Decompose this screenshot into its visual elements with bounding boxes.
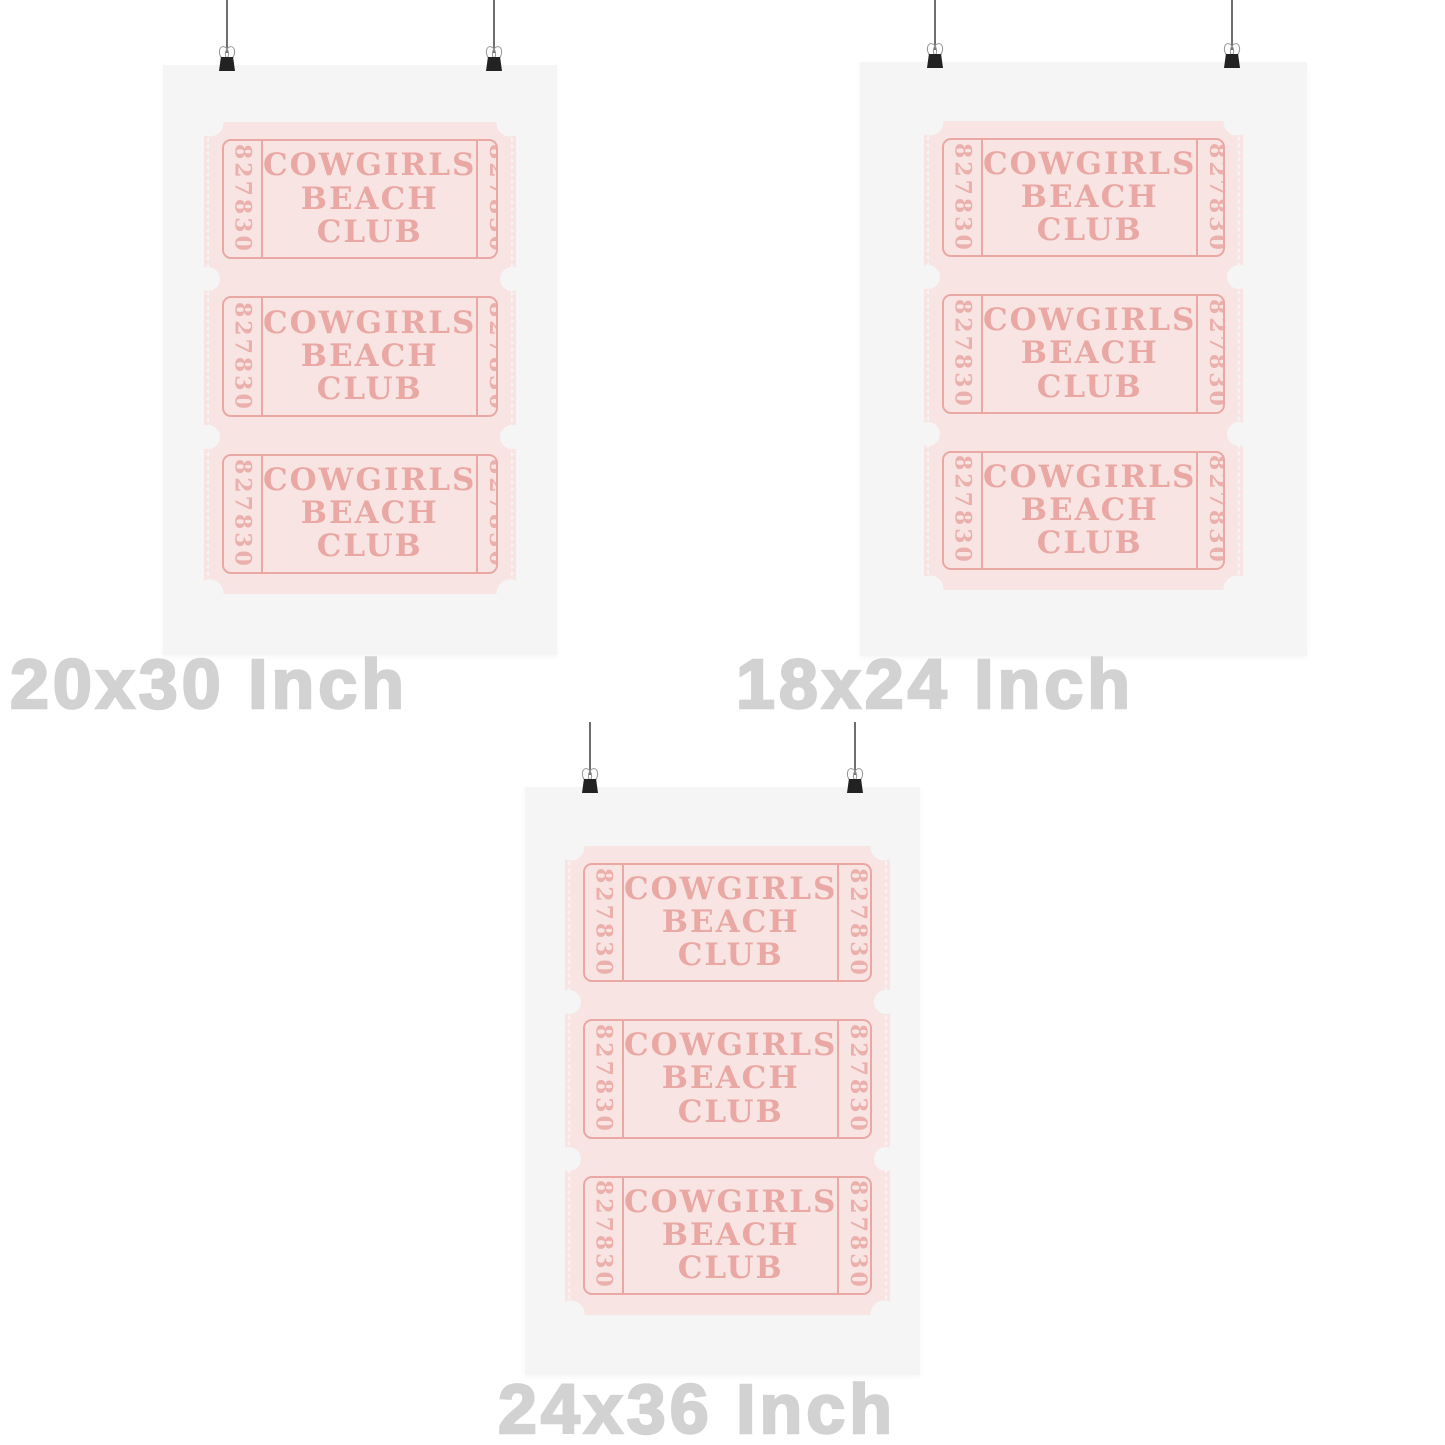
poster-24x36: 827830 COWGIRLS BEACH CLUB 827830 827830 [525, 787, 920, 1375]
serial-column-left: 827830 [224, 141, 263, 257]
title-line: BEACH [1021, 337, 1159, 370]
corner-notch [558, 834, 585, 861]
binder-clip [485, 0, 503, 78]
hanging-wire-icon [589, 722, 591, 775]
binder-clip-icon [847, 779, 863, 793]
junction-notch [196, 425, 220, 449]
serial-column-right: 827830 [837, 865, 872, 980]
serial-number: 827830 [950, 455, 976, 565]
serial-column-right: 827830 [837, 1178, 872, 1293]
serial-column-left: 827830 [224, 456, 263, 572]
corner-notch [197, 580, 224, 607]
junction-notch [916, 422, 940, 446]
serial-number: 827830 [591, 1180, 617, 1290]
junction-notch [874, 990, 898, 1014]
ticket: 827830 COWGIRLS BEACH CLUB 827830 [570, 1159, 885, 1315]
serial-column-right: 827830 [476, 141, 498, 257]
serial-column-right: 827830 [476, 456, 498, 572]
ticket: 827830 COWGIRLS BEACH CLUB 827830 [209, 437, 511, 594]
poster-18x24: 827830 COWGIRLS BEACH CLUB 827830 827830 [860, 62, 1307, 656]
ticket-border: 827830 COWGIRLS BEACH CLUB 827830 [222, 454, 498, 574]
title-line: COWGIRLS [983, 304, 1196, 337]
title-line: COWGIRLS [263, 307, 476, 340]
ticket: 827830 COWGIRLS BEACH CLUB 827830 [209, 122, 511, 279]
junction-notch [1227, 422, 1251, 446]
ticket: 827830 COWGIRLS BEACH CLUB 827830 [929, 121, 1238, 277]
ticket-title: COWGIRLS BEACH CLUB [263, 141, 476, 257]
title-line: COWGIRLS [624, 1186, 837, 1219]
junction-notch [874, 1147, 898, 1171]
title-line: BEACH [662, 906, 800, 939]
serial-column-right: 827830 [837, 1021, 872, 1136]
ticket-title: COWGIRLS BEACH CLUB [624, 1178, 837, 1293]
corner-notch [871, 1301, 898, 1328]
ticket-border: 827830 COWGIRLS BEACH CLUB 827830 [222, 139, 498, 259]
serial-number: 827830 [950, 143, 976, 253]
binder-clip-icon [927, 54, 943, 68]
serial-number: 827830 [591, 1024, 617, 1134]
title-line: BEACH [301, 340, 439, 373]
title-line: CLUB [317, 373, 423, 406]
ticket-border: 827830 COWGIRLS BEACH CLUB 827830 [222, 296, 498, 416]
junction-notch [500, 267, 524, 291]
serial-column-left: 827830 [944, 296, 983, 411]
ticket-title: COWGIRLS BEACH CLUB [983, 296, 1196, 411]
serial-number: 827830 [591, 868, 617, 978]
serial-number: 827830 [230, 302, 256, 412]
title-line: COWGIRLS [624, 873, 837, 906]
serial-column-left: 827830 [585, 1178, 624, 1293]
title-line: COWGIRLS [624, 1029, 837, 1062]
title-line: CLUB [317, 216, 423, 249]
serial-number: 827830 [230, 459, 256, 569]
title-line: BEACH [301, 497, 439, 530]
junction-notch [557, 1147, 581, 1171]
ticket-border: 827830 COWGIRLS BEACH CLUB 827830 [942, 294, 1225, 413]
perforated-edge-right [1238, 121, 1243, 590]
junction-notch [916, 265, 940, 289]
ticket-title: COWGIRLS BEACH CLUB [624, 865, 837, 980]
junction-notch [1227, 265, 1251, 289]
binder-clip-icon [219, 57, 235, 71]
serial-column-right: 827830 [1196, 140, 1225, 255]
serial-column-left: 827830 [944, 453, 983, 568]
binder-clip-icon [1224, 54, 1240, 68]
corner-notch [497, 580, 524, 607]
corner-notch [197, 110, 224, 137]
size-label-20x30: 20x30 Inch [10, 649, 408, 719]
title-line: CLUB [678, 1096, 784, 1129]
ticket-border: 827830 COWGIRLS BEACH CLUB 827830 [583, 1019, 872, 1138]
ticket-title: COWGIRLS BEACH CLUB [983, 140, 1196, 255]
perforated-edge-right [511, 122, 516, 594]
ticket-strip: 827830 COWGIRLS BEACH CLUB 827830 827830 [565, 846, 890, 1315]
serial-number: 827830 [950, 299, 976, 409]
hanging-wire-icon [854, 722, 856, 775]
serial-number: 827830 [230, 144, 256, 254]
serial-number: 827830 [845, 1180, 871, 1290]
title-line: CLUB [678, 939, 784, 972]
title-line: COWGIRLS [983, 461, 1196, 494]
binder-clip-icon [582, 779, 598, 793]
title-line: BEACH [662, 1062, 800, 1095]
ticket: 827830 COWGIRLS BEACH CLUB 827830 [570, 1002, 885, 1158]
title-line: CLUB [1037, 371, 1143, 404]
binder-clip [1223, 0, 1241, 75]
hanging-wire-icon [226, 0, 228, 53]
junction-notch [500, 425, 524, 449]
serial-number: 827830 [484, 459, 498, 569]
binder-clip [581, 722, 599, 800]
ticket-title: COWGIRLS BEACH CLUB [624, 1021, 837, 1136]
ticket-title: COWGIRLS BEACH CLUB [263, 298, 476, 414]
title-line: CLUB [678, 1252, 784, 1285]
binder-clip [926, 0, 944, 75]
perforated-edge-right [885, 846, 890, 1315]
serial-column-left: 827830 [944, 140, 983, 255]
ticket-border: 827830 COWGIRLS BEACH CLUB 827830 [942, 138, 1225, 257]
binder-clip [218, 0, 236, 78]
serial-number: 827830 [845, 1024, 871, 1134]
title-line: CLUB [1037, 527, 1143, 560]
serial-column-left: 827830 [585, 865, 624, 980]
serial-number: 827830 [1204, 455, 1225, 565]
ticket-border: 827830 COWGIRLS BEACH CLUB 827830 [583, 1176, 872, 1295]
corner-notch [917, 576, 944, 603]
title-line: BEACH [1021, 181, 1159, 214]
title-line: BEACH [301, 183, 439, 216]
serial-number: 827830 [1204, 299, 1225, 409]
poster-mockup-scene: 827830 COWGIRLS BEACH CLUB 827830 827830 [0, 0, 1445, 1445]
binder-clip [846, 722, 864, 800]
junction-notch [196, 267, 220, 291]
corner-notch [871, 834, 898, 861]
title-line: COWGIRLS [263, 149, 476, 182]
ticket-border: 827830 COWGIRLS BEACH CLUB 827830 [942, 451, 1225, 570]
corner-notch [917, 109, 944, 136]
serial-number: 827830 [845, 868, 871, 978]
title-line: BEACH [662, 1219, 800, 1252]
corner-notch [497, 110, 524, 137]
ticket-strip: 827830 COWGIRLS BEACH CLUB 827830 827830 [204, 122, 516, 594]
serial-number: 827830 [484, 302, 498, 412]
serial-number: 827830 [484, 144, 498, 254]
serial-column-left: 827830 [585, 1021, 624, 1136]
title-line: BEACH [1021, 494, 1159, 527]
ticket-strip: 827830 COWGIRLS BEACH CLUB 827830 827830 [924, 121, 1243, 590]
hanging-wire-icon [493, 0, 495, 53]
title-line: COWGIRLS [983, 148, 1196, 181]
serial-column-left: 827830 [224, 298, 263, 414]
ticket: 827830 COWGIRLS BEACH CLUB 827830 [209, 279, 511, 436]
corner-notch [1224, 576, 1251, 603]
ticket-title: COWGIRLS BEACH CLUB [263, 456, 476, 572]
corner-notch [558, 1301, 585, 1328]
title-line: CLUB [1037, 214, 1143, 247]
size-label-24x36: 24x36 Inch [498, 1374, 896, 1444]
serial-number: 827830 [1204, 143, 1225, 253]
ticket: 827830 COWGIRLS BEACH CLUB 827830 [929, 434, 1238, 590]
ticket-border: 827830 COWGIRLS BEACH CLUB 827830 [583, 863, 872, 982]
ticket: 827830 COWGIRLS BEACH CLUB 827830 [570, 846, 885, 1002]
ticket: 827830 COWGIRLS BEACH CLUB 827830 [929, 277, 1238, 433]
corner-notch [1224, 109, 1251, 136]
serial-column-right: 827830 [1196, 453, 1225, 568]
serial-column-right: 827830 [1196, 296, 1225, 411]
title-line: CLUB [317, 530, 423, 563]
size-label-18x24: 18x24 Inch [736, 649, 1134, 719]
title-line: COWGIRLS [263, 464, 476, 497]
poster-20x30: 827830 COWGIRLS BEACH CLUB 827830 827830 [163, 65, 557, 655]
ticket-title: COWGIRLS BEACH CLUB [983, 453, 1196, 568]
serial-column-right: 827830 [476, 298, 498, 414]
binder-clip-icon [486, 57, 502, 71]
junction-notch [557, 990, 581, 1014]
